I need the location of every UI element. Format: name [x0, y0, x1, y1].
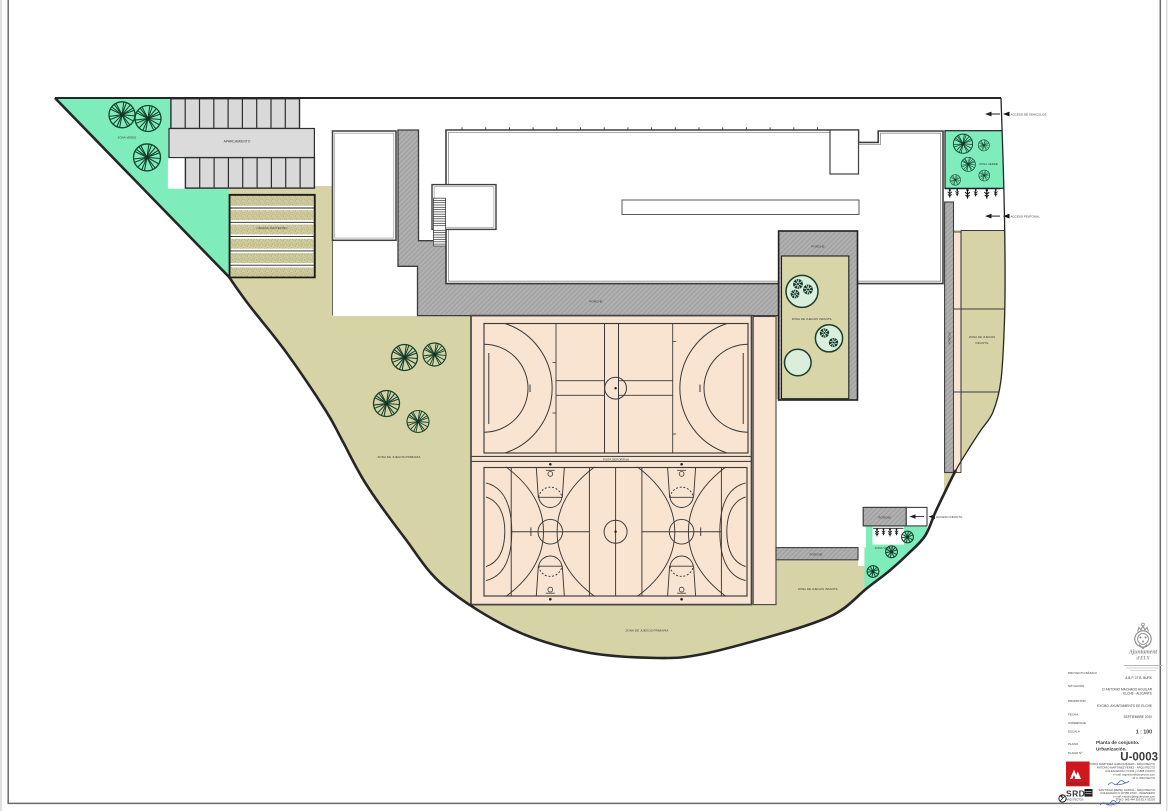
svg-text:ZONA DE JUEGOS PRIMARIA: ZONA DE JUEGOS PRIMARIA [626, 629, 670, 633]
svg-text:ARQUITECTURA: ARQUITECTURA [1068, 782, 1089, 786]
svg-text:SITUACIÓN: SITUACIÓN [1068, 683, 1084, 688]
svg-text:ZONA DE JUEGOS: ZONA DE JUEGOS [969, 335, 995, 339]
svg-text:FECHA: FECHA [1068, 713, 1078, 717]
svg-text:EXCMO. AYUNTAMIENTO DE ELCHE: EXCMO. AYUNTAMIENTO DE ELCHE [1097, 704, 1152, 708]
svg-text:PORCHE: PORCHE [589, 300, 602, 304]
svg-text:1 : 100: 1 : 100 [1136, 730, 1152, 736]
svg-text:PORCHE: PORCHE [947, 332, 951, 345]
svg-text:SUPERFICIE: SUPERFICIE [1068, 721, 1086, 725]
svg-text:GRADAS ANFITEATRO: GRADAS ANFITEATRO [257, 226, 289, 230]
svg-text:PLANO Nº: PLANO Nº [1068, 751, 1083, 755]
svg-text:ACCESO DE VEHICULOS: ACCESO DE VEHICULOS [1011, 112, 1047, 116]
svg-text:ZONA VERDE: ZONA VERDE [875, 546, 894, 550]
svg-text:INFANTIL: INFANTIL [975, 341, 989, 345]
svg-text:PISTA DEPORTIVA: PISTA DEPORTIVA [603, 457, 629, 461]
svg-text:ACCESO PEATONAL: ACCESO PEATONAL [1011, 215, 1041, 219]
svg-text:SEPTIEMBRE 2020: SEPTIEMBRE 2020 [1123, 715, 1152, 719]
svg-text:TFNO: 965.444.555 ELX 03203: TFNO: 965.444.555 ELX 03203 [1116, 798, 1156, 802]
svg-text:PORCHE: PORCHE [878, 515, 891, 519]
svg-text:PROYECTO BÁSICO: PROYECTO BÁSICO [1068, 671, 1098, 675]
svg-text:PLANO: PLANO [1068, 742, 1079, 746]
svg-text:PORCHE: PORCHE [811, 245, 824, 249]
svg-text:ZONA DE JUEGOS PRIMARIA: ZONA DE JUEGOS PRIMARIA [378, 455, 422, 459]
svg-text:d'ELX: d'ELX [1136, 657, 1150, 662]
svg-text:ZONA DE JUEGOS INFANTIL: ZONA DE JUEGOS INFANTIL [798, 587, 839, 591]
svg-text:Planta de conjunto.: Planta de conjunto. [1096, 740, 1139, 745]
svg-text:PROMOTOR: PROMOTOR [1068, 699, 1086, 703]
svg-text:ARQUITECTOS: ARQUITECTOS [1066, 799, 1084, 802]
svg-text:ZONA VERDE: ZONA VERDE [118, 136, 137, 140]
svg-text:ELCHE - ALICANTE: ELCHE - ALICANTE [1123, 692, 1152, 696]
svg-text:SRD: SRD [1066, 789, 1085, 799]
svg-text:ZONA VERDE: ZONA VERDE [979, 162, 998, 166]
svg-text:ACCESO INFANTIL: ACCESO INFANTIL [936, 515, 963, 519]
svg-text:M.U. PROYECTO: M.U. PROYECTO [1133, 776, 1156, 780]
svg-text:ESCALA: ESCALA [1068, 730, 1080, 734]
svg-text:A.B.P. 07 B. BURK: A.B.P. 07 B. BURK [1125, 676, 1153, 680]
svg-text:PORCHE: PORCHE [810, 552, 823, 556]
svg-text:Ajuntament: Ajuntament [1128, 650, 1158, 656]
svg-text:APARCAMIENTO: APARCAMIENTO [224, 140, 251, 144]
svg-text:ZONA DE JUEGOS INFANTIL: ZONA DE JUEGOS INFANTIL [792, 317, 833, 321]
